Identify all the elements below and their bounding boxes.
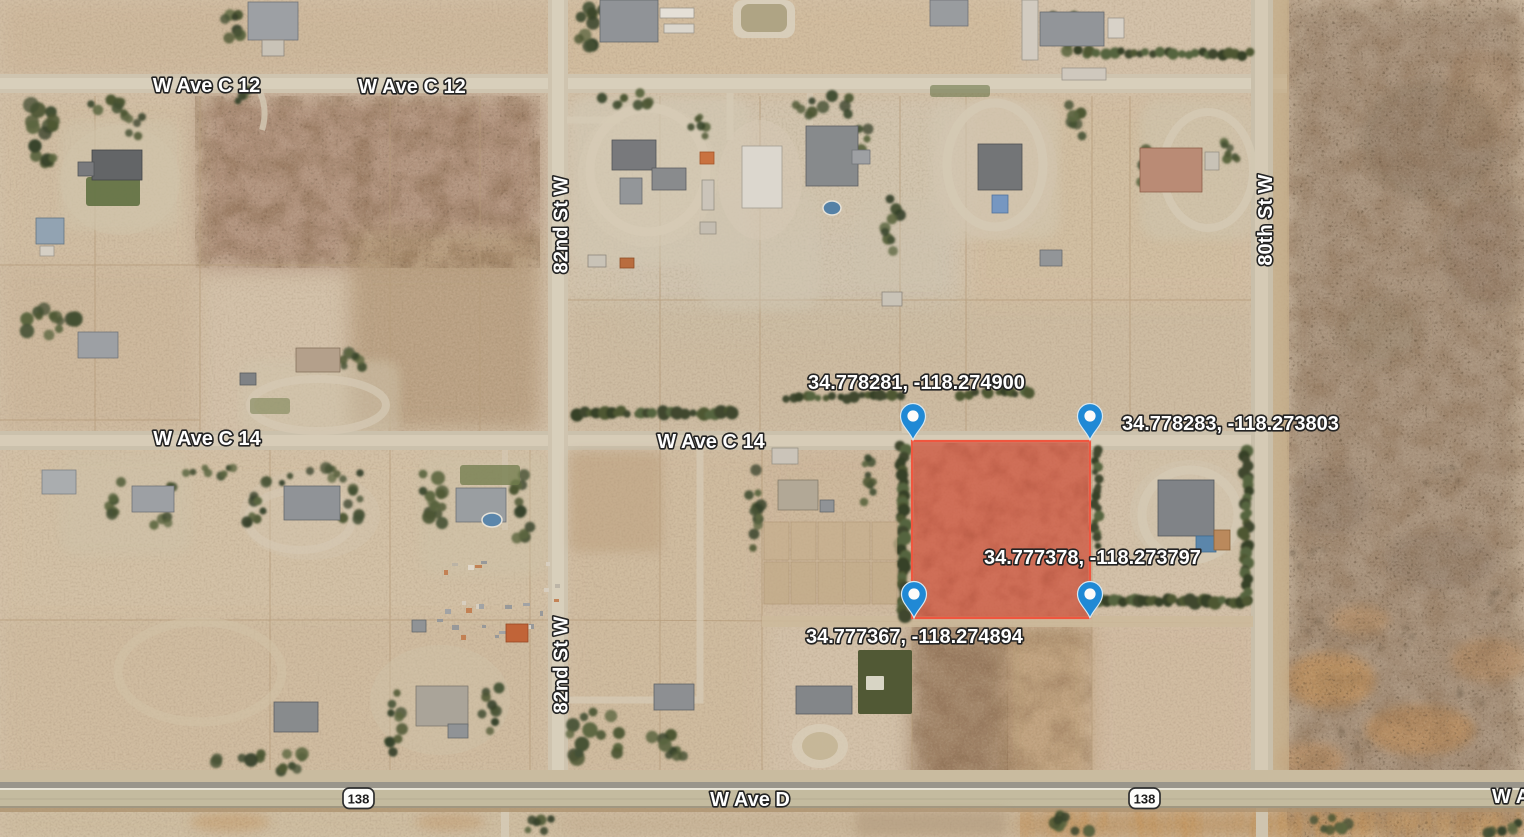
svg-text:138: 138 <box>348 792 370 807</box>
svg-text:138: 138 <box>1134 792 1156 807</box>
svg-text:82nd St W: 82nd St W <box>551 177 573 274</box>
svg-text:34.777367, -118.274894: 34.777367, -118.274894 <box>806 626 1024 648</box>
svg-text:W Ave C 12: W Ave C 12 <box>153 75 260 97</box>
svg-text:34.778281, -118.274900: 34.778281, -118.274900 <box>808 372 1025 394</box>
svg-text:80th St W: 80th St W <box>1255 174 1277 265</box>
svg-text:W Ave C 12: W Ave C 12 <box>358 76 465 98</box>
svg-text:W Ave D: W Ave D <box>1492 786 1524 808</box>
svg-text:34.777378, -118.273797: 34.777378, -118.273797 <box>984 547 1201 569</box>
svg-text:W Ave C 14: W Ave C 14 <box>657 431 765 453</box>
svg-text:W Ave C 14: W Ave C 14 <box>153 428 261 450</box>
svg-text:W Ave D: W Ave D <box>710 789 790 811</box>
svg-text:34.778283, -118.273803: 34.778283, -118.273803 <box>1122 413 1339 435</box>
svg-text:82nd St W: 82nd St W <box>551 617 573 714</box>
